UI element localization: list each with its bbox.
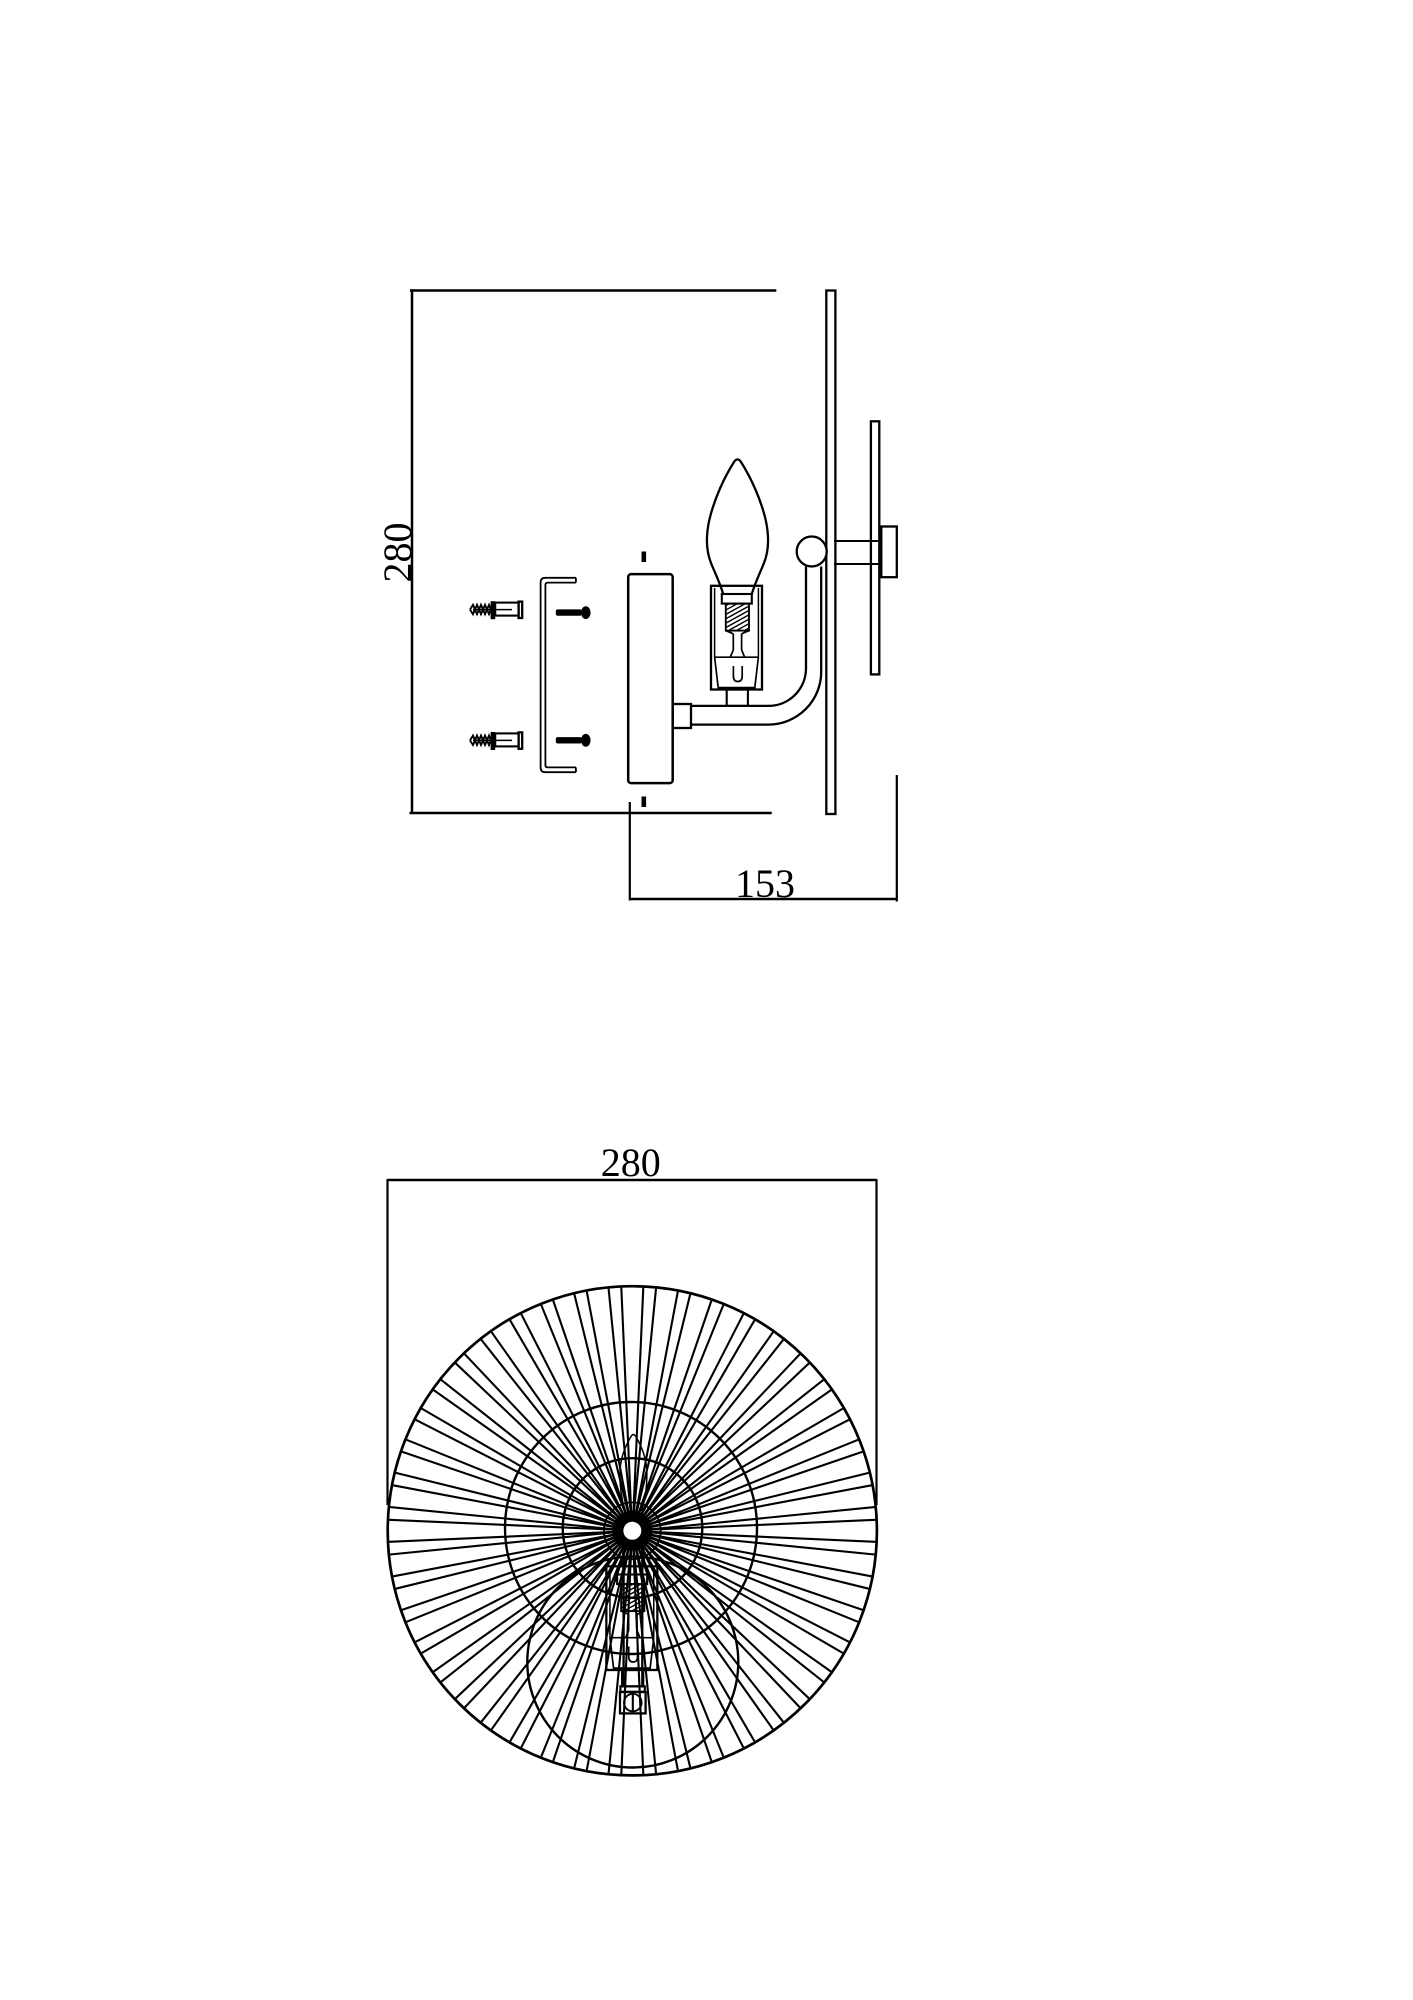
svg-text:280: 280 [601, 1140, 661, 1185]
svg-text:153: 153 [735, 861, 795, 906]
svg-text:280: 280 [375, 523, 420, 583]
